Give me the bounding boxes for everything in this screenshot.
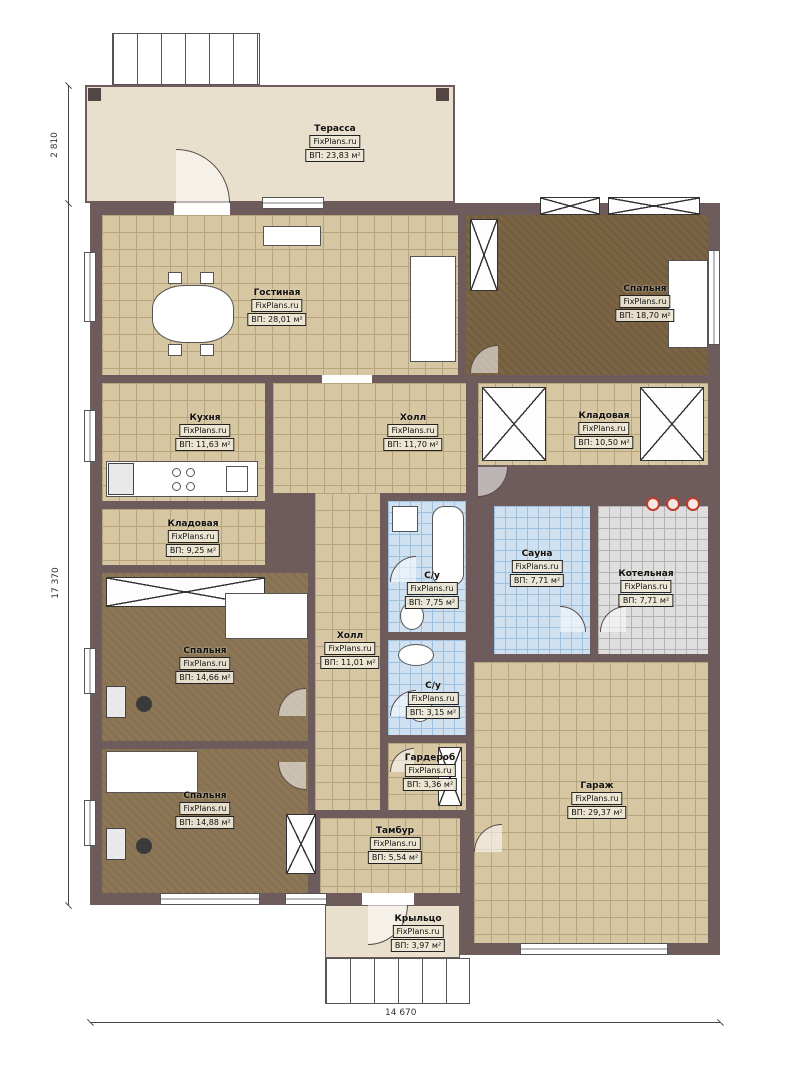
closet-top-wall xyxy=(608,197,700,215)
kitchen-sink xyxy=(226,466,248,492)
chair xyxy=(168,344,182,356)
bed xyxy=(106,751,198,793)
desk-chair xyxy=(136,696,152,712)
desk xyxy=(106,828,126,860)
closet-storage-right xyxy=(482,387,546,461)
hall-mid-floor xyxy=(315,493,380,810)
closet-storage-right xyxy=(640,387,704,461)
dining-table xyxy=(152,285,234,343)
stairs-top xyxy=(112,33,260,85)
window xyxy=(708,250,720,345)
window xyxy=(262,197,324,209)
dim-line-house xyxy=(68,203,69,905)
dim-line-width xyxy=(90,1022,720,1023)
window xyxy=(160,893,260,905)
boiler-unit xyxy=(646,497,660,511)
sink xyxy=(398,644,434,666)
hall-top-floor xyxy=(273,383,466,493)
terrace-post xyxy=(436,88,449,101)
toilet xyxy=(400,602,424,630)
bed xyxy=(225,593,308,639)
bathtub xyxy=(432,506,464,586)
door-opening-hall xyxy=(322,375,372,383)
bed xyxy=(668,260,708,348)
boiler-unit xyxy=(666,497,680,511)
door-opening-terrace xyxy=(174,203,230,215)
closet-top-wall xyxy=(540,197,600,215)
floor-plan: Терасса FixPlans.ru ВП: 23,83 м² Гостина… xyxy=(0,0,792,1080)
stove-burner xyxy=(172,482,181,491)
toilet xyxy=(408,694,432,722)
chair xyxy=(200,272,214,284)
chair xyxy=(200,344,214,356)
desk-chair xyxy=(136,838,152,854)
closet-tambour xyxy=(286,814,316,874)
tambour-floor xyxy=(320,818,460,893)
closet-bedroom-tr xyxy=(470,219,498,291)
washing-machine xyxy=(392,506,418,532)
stove-burner xyxy=(186,482,195,491)
garage-floor xyxy=(474,662,708,943)
garage-gate xyxy=(520,943,668,955)
storage-left-floor xyxy=(102,509,265,565)
sofa xyxy=(410,256,456,362)
chair xyxy=(168,272,182,284)
closet-wardrobe-room xyxy=(438,747,462,806)
stove-burner xyxy=(172,468,181,477)
terrace-post xyxy=(88,88,101,101)
dim-line-terrace xyxy=(68,85,69,203)
dim-house-height: 17 370 xyxy=(51,567,61,599)
stove-burner xyxy=(186,468,195,477)
window xyxy=(84,800,96,846)
window xyxy=(84,410,96,462)
stairs-bottom xyxy=(325,958,470,1004)
door-opening-porch xyxy=(362,893,414,905)
dim-house-width: 14 670 xyxy=(385,1008,417,1018)
terrace-area xyxy=(85,85,455,203)
window xyxy=(285,893,327,905)
boiler-unit xyxy=(686,497,700,511)
dim-terrace-height: 2 810 xyxy=(50,132,60,158)
window xyxy=(84,252,96,322)
desk xyxy=(106,686,126,718)
tv-unit xyxy=(263,226,321,246)
fridge xyxy=(108,463,134,495)
window xyxy=(84,648,96,694)
